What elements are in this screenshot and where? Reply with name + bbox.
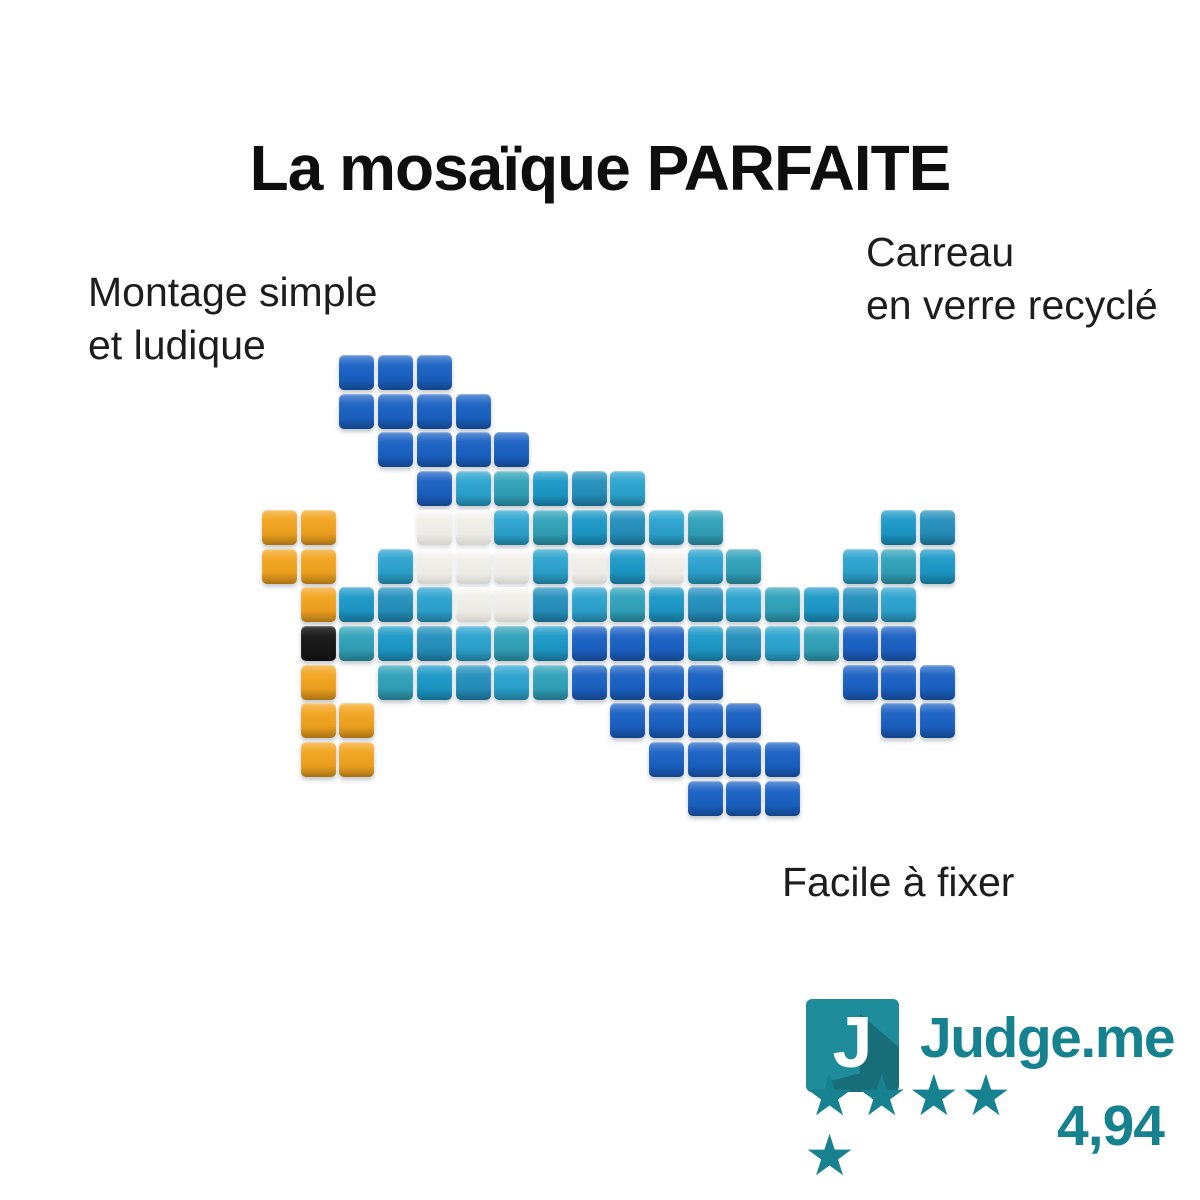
mosaic-tile xyxy=(301,703,336,738)
mosaic-tile xyxy=(456,510,491,545)
mosaic-tile xyxy=(881,703,916,738)
mosaic-tile xyxy=(378,626,413,661)
label-facile-fixer: Facile à fixer xyxy=(782,856,1014,909)
mosaic-tile xyxy=(417,665,452,700)
mosaic-tile xyxy=(649,549,684,584)
mosaic-tile xyxy=(417,626,452,661)
mosaic-tile xyxy=(339,626,374,661)
mosaic-tile xyxy=(881,626,916,661)
mosaic-tile xyxy=(765,587,800,622)
mosaic-tile xyxy=(881,510,916,545)
mosaic-tile xyxy=(688,626,723,661)
mosaic-tile xyxy=(610,549,645,584)
star-icon: ★ xyxy=(856,1066,908,1126)
mosaic-tile xyxy=(417,432,452,467)
star-icon: ★ xyxy=(804,1126,856,1186)
mosaic-tile xyxy=(688,742,723,777)
mosaic-tile xyxy=(533,471,568,506)
mosaic-tile xyxy=(881,549,916,584)
mosaic-tile xyxy=(494,471,529,506)
mosaic-tile xyxy=(804,626,839,661)
mosaic-tile xyxy=(843,587,878,622)
mosaic-tile xyxy=(456,626,491,661)
star-icon: ★ xyxy=(804,1066,856,1126)
mosaic-tile xyxy=(533,510,568,545)
mosaic-tile xyxy=(726,626,761,661)
mosaic-tile xyxy=(301,549,336,584)
mosaic-tile xyxy=(572,549,607,584)
mosaic-tile xyxy=(688,510,723,545)
mosaic-tile xyxy=(301,587,336,622)
mosaic-tile xyxy=(843,549,878,584)
mosaic-tile xyxy=(494,587,529,622)
mosaic-tile xyxy=(301,665,336,700)
label-line: en verre recyclé xyxy=(866,279,1158,332)
mosaic-tile xyxy=(417,355,452,390)
mosaic-tile xyxy=(843,626,878,661)
mosaic-tile xyxy=(572,471,607,506)
mosaic-tile xyxy=(339,355,374,390)
mosaic-tile xyxy=(610,703,645,738)
mosaic-tile xyxy=(726,549,761,584)
mosaic-tile xyxy=(262,510,297,545)
mosaic-tile xyxy=(610,510,645,545)
mosaic-tile xyxy=(378,587,413,622)
mosaic-tile xyxy=(765,742,800,777)
mosaic-tile xyxy=(649,665,684,700)
mosaic-tile xyxy=(339,394,374,429)
mosaic-tile xyxy=(726,742,761,777)
mosaic-tile xyxy=(688,703,723,738)
mosaic-tile xyxy=(533,665,568,700)
star-icon: ★ xyxy=(908,1066,960,1126)
mosaic-tile xyxy=(417,471,452,506)
mosaic-tile xyxy=(339,742,374,777)
mosaic-tile xyxy=(765,626,800,661)
label-line: Facile à fixer xyxy=(782,856,1014,909)
mosaic-tile xyxy=(456,549,491,584)
mosaic-tile xyxy=(688,549,723,584)
mosaic-tile xyxy=(572,587,607,622)
mosaic-tile xyxy=(610,587,645,622)
mosaic-tile xyxy=(920,665,955,700)
mosaic-tile xyxy=(456,432,491,467)
mosaic-tile xyxy=(533,626,568,661)
mosaic-tile xyxy=(339,587,374,622)
mosaic-tile xyxy=(301,510,336,545)
mosaic-tile xyxy=(378,432,413,467)
mosaic-tile xyxy=(572,510,607,545)
mosaic-tile xyxy=(456,665,491,700)
mosaic-tile xyxy=(494,549,529,584)
mosaic-tile xyxy=(726,703,761,738)
mosaic-tile xyxy=(649,703,684,738)
mosaic-tile xyxy=(688,665,723,700)
mosaic-tile xyxy=(610,626,645,661)
label-line: Carreau xyxy=(866,226,1158,279)
mosaic-tile xyxy=(726,781,761,816)
mosaic-tile xyxy=(843,665,878,700)
mosaic-tile xyxy=(417,587,452,622)
mosaic-tile xyxy=(494,626,529,661)
mosaic-tile xyxy=(301,742,336,777)
mosaic-tile xyxy=(494,510,529,545)
label-carreau-verre: Carreau en verre recyclé xyxy=(866,226,1158,332)
mosaic-tile xyxy=(726,587,761,622)
label-line: Montage simple xyxy=(88,266,377,319)
mosaic-tile xyxy=(765,781,800,816)
mosaic-tile xyxy=(920,703,955,738)
mosaic-tile xyxy=(572,626,607,661)
mosaic-tile xyxy=(688,781,723,816)
mosaic-tile xyxy=(688,587,723,622)
mosaic-tile xyxy=(920,549,955,584)
mosaic-tile xyxy=(610,665,645,700)
promo-image: La mosaïque PARFAITE Montage simple et l… xyxy=(0,0,1200,1200)
judgeme-wordmark: Judge.me xyxy=(920,1005,1174,1071)
mosaic-tile xyxy=(494,665,529,700)
mosaic-tile xyxy=(456,471,491,506)
mosaic-tile xyxy=(262,549,297,584)
mosaic-tile xyxy=(649,626,684,661)
mosaic-tile xyxy=(417,549,452,584)
rating-row: ★★★★★ 4,94 xyxy=(804,1096,1164,1156)
rating-value: 4,94 xyxy=(1057,1093,1164,1159)
mosaic-tile xyxy=(417,510,452,545)
mosaic-tile xyxy=(378,549,413,584)
mosaic-tile xyxy=(920,510,955,545)
mosaic-tile xyxy=(378,394,413,429)
page-title: La mosaïque PARFAITE xyxy=(0,131,1200,205)
mosaic-tile xyxy=(417,394,452,429)
mosaic-art xyxy=(262,355,959,820)
mosaic-tile xyxy=(533,587,568,622)
mosaic-tile xyxy=(649,742,684,777)
mosaic-tile xyxy=(649,510,684,545)
mosaic-tile xyxy=(456,394,491,429)
mosaic-tile xyxy=(572,665,607,700)
mosaic-tile xyxy=(378,665,413,700)
stars-row: ★★★★★ xyxy=(804,1066,1047,1186)
mosaic-tile xyxy=(494,432,529,467)
mosaic-tile xyxy=(533,549,568,584)
mosaic-tile xyxy=(456,587,491,622)
star-icon: ★ xyxy=(960,1066,1012,1126)
mosaic-tile xyxy=(804,587,839,622)
mosaic-tile xyxy=(378,355,413,390)
mosaic-tile xyxy=(881,587,916,622)
mosaic-tile xyxy=(610,471,645,506)
mosaic-tile xyxy=(649,587,684,622)
mosaic-tile xyxy=(881,665,916,700)
mosaic-tile xyxy=(301,626,336,661)
mosaic-tile xyxy=(339,703,374,738)
